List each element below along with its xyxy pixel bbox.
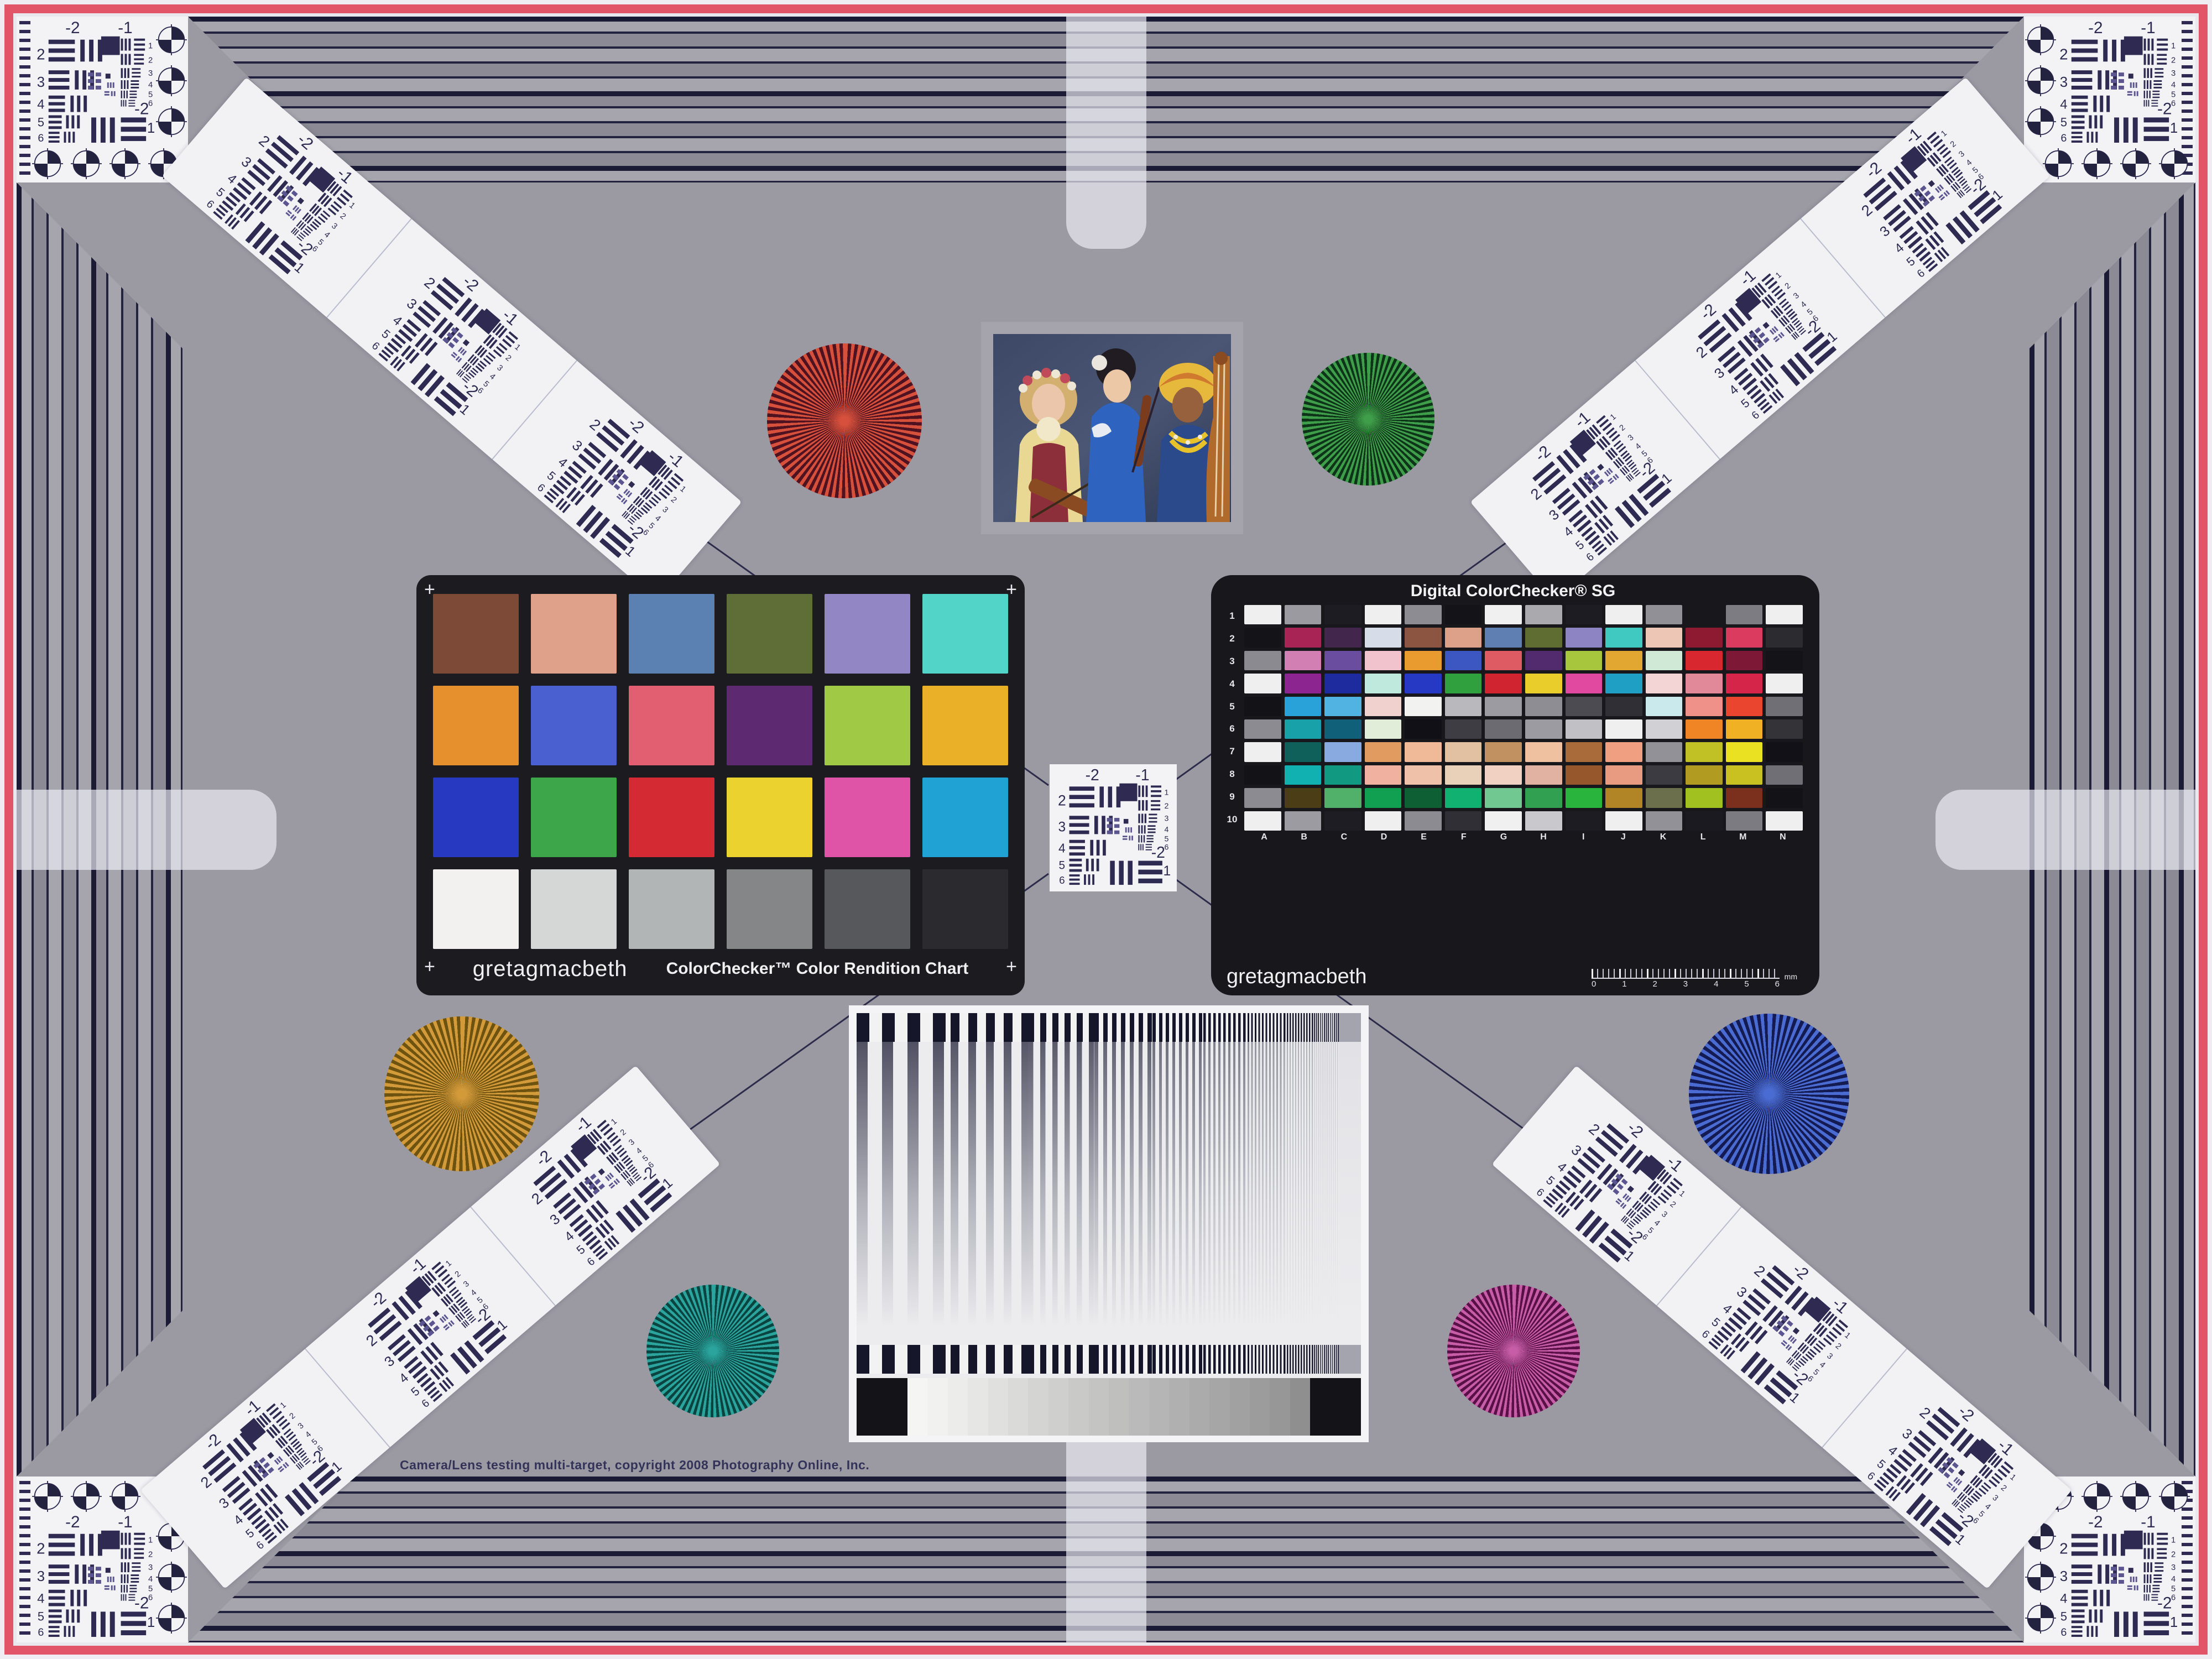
color-patch: [922, 869, 1008, 949]
color-patch: [1566, 742, 1603, 761]
sg-patch-grid: [1244, 605, 1803, 831]
color-patch: [1485, 674, 1522, 693]
color-patch: [1646, 697, 1683, 716]
color-patch: [1324, 788, 1361, 807]
color-patch: [1686, 719, 1723, 739]
color-patch: [1324, 697, 1361, 716]
color-patch: [1605, 719, 1642, 739]
sg-brand: gretagmacbeth: [1227, 965, 1367, 989]
color-patch: [1405, 811, 1442, 831]
sg-column-label: G: [1484, 832, 1524, 842]
color-patch: [1365, 719, 1402, 739]
color-patch: [1726, 674, 1763, 693]
color-patch: [1445, 788, 1482, 807]
quadrant-mark-icon: [71, 1481, 102, 1512]
sg-column-label: A: [1244, 832, 1284, 842]
ruler-number: 6: [1775, 979, 1780, 989]
color-patch: [1405, 719, 1442, 739]
gray-step: [1230, 1378, 1250, 1436]
color-patch: [1525, 605, 1562, 624]
color-patch: [1686, 628, 1723, 647]
color-patch: [1605, 605, 1642, 624]
color-patch: [1566, 628, 1603, 647]
color-patch: [1244, 788, 1281, 807]
color-patch: [433, 594, 519, 674]
color-patch: [1324, 605, 1361, 624]
color-patch: [1365, 605, 1402, 624]
color-patch: [1646, 742, 1683, 761]
color-patch: [1726, 742, 1763, 761]
color-patch: [1525, 765, 1562, 785]
color-patch: [629, 778, 714, 857]
magenta-siemens-star: [1447, 1285, 1580, 1417]
gray-step: [1048, 1378, 1068, 1436]
musicians-photo-illustration: [993, 334, 1231, 522]
color-patch: [1566, 788, 1603, 807]
ruler-number: 5: [1744, 979, 1749, 989]
portrait-photo: [981, 322, 1243, 534]
color-patch: [1285, 651, 1322, 670]
quadrant-mark-icon: [2120, 148, 2151, 179]
color-patch: [1605, 788, 1642, 807]
color-patch: [629, 869, 714, 949]
corner-target-top-left: [17, 17, 188, 182]
color-patch: [1485, 742, 1522, 761]
color-patch: [433, 778, 519, 857]
quadrant-mark-icon: [32, 148, 63, 179]
sg-column-label: E: [1404, 832, 1444, 842]
sg-row-label: 5: [1229, 701, 1234, 712]
sg-row-labels: 12345678910: [1223, 605, 1241, 831]
sg-column-label: D: [1364, 832, 1404, 842]
color-patch: [825, 778, 910, 857]
color-patch: [1766, 605, 1803, 624]
grayscale-step-wedge: [857, 1378, 1361, 1436]
quadrant-mark-icon: [2081, 1481, 2112, 1512]
color-patch: [1726, 628, 1763, 647]
color-patch: [1686, 788, 1723, 807]
color-patch: [1405, 765, 1442, 785]
ruler-unit: mm: [1785, 972, 1797, 981]
color-patch: [922, 778, 1008, 857]
color-patch: [1605, 697, 1642, 716]
sg-column-labels: ABCDEFGHIJKLMN: [1244, 831, 1803, 844]
quadrant-mark-icon: [156, 65, 187, 96]
sg-column-label: K: [1643, 832, 1683, 842]
ruler-number: 3: [1683, 979, 1688, 989]
color-patch: [1244, 674, 1281, 693]
color-patch: [1405, 788, 1442, 807]
color-patch: [1285, 765, 1322, 785]
quadrant-mark-icon: [2025, 106, 2056, 137]
registration-plus-icon: +: [1006, 584, 1017, 595]
color-patch: [1525, 719, 1562, 739]
gray-step: [1028, 1378, 1048, 1436]
ruler-numbers: 0123456: [1592, 979, 1780, 989]
color-patch: [825, 869, 910, 949]
color-patch: [1405, 605, 1442, 624]
color-patch: [922, 594, 1008, 674]
gray-step: [1209, 1378, 1229, 1436]
test-chart-page: -2 -1 2 3 4 5 6: [0, 0, 2212, 1659]
black-end-patch: [857, 1378, 907, 1436]
sg-ruler: 0123456 mm: [1592, 969, 1799, 989]
color-patch: [1646, 765, 1683, 785]
color-patch: [1244, 765, 1281, 785]
ruler-number: 1: [1622, 979, 1626, 989]
gray-step: [1129, 1378, 1149, 1436]
right-edge-marker-tab: [1936, 790, 2195, 870]
color-patch: [1405, 651, 1442, 670]
quadrant-mark-icon: [2025, 1562, 2056, 1593]
color-patch: [1485, 788, 1522, 807]
black-end-patch: [1310, 1378, 1361, 1436]
color-patch: [1646, 719, 1683, 739]
color-patch: [1525, 628, 1562, 647]
color-patch: [1324, 651, 1361, 670]
color-patch: [1525, 788, 1562, 807]
quadrant-mark-icon: [156, 1562, 187, 1593]
color-patch: [1405, 628, 1442, 647]
gray-step: [1109, 1378, 1129, 1436]
color-patch: [1285, 605, 1322, 624]
gold-siemens-star: [384, 1016, 539, 1171]
color-patch: [1525, 811, 1562, 831]
sg-row-label: 8: [1229, 769, 1234, 780]
sg-row-label: 4: [1229, 679, 1234, 690]
colorchecker-title: ColorChecker™ Color Rendition Chart: [666, 959, 969, 978]
color-patch: [1405, 697, 1442, 716]
color-patch: [1726, 765, 1763, 785]
color-patch: [1646, 788, 1683, 807]
color-patch: [1726, 719, 1763, 739]
sg-column-label: J: [1603, 832, 1643, 842]
sg-row-label: 9: [1229, 791, 1234, 802]
color-patch: [1566, 697, 1603, 716]
color-patch: [1445, 811, 1482, 831]
color-patch: [825, 594, 910, 674]
color-patch: [1365, 651, 1402, 670]
color-patch: [1324, 742, 1361, 761]
quadrant-mark-icon: [156, 106, 187, 137]
color-patch: [1285, 697, 1322, 716]
corner-target-top-right: [2024, 17, 2195, 182]
color-patch: [1445, 765, 1482, 785]
color-patch: [1686, 674, 1723, 693]
color-patch: [1686, 811, 1723, 831]
color-patch: [1445, 674, 1482, 693]
color-patch: [1605, 651, 1642, 670]
quadrant-mark-icon: [2025, 24, 2056, 55]
color-patch: [1405, 674, 1442, 693]
quadrant-mark-icon: [109, 1481, 140, 1512]
color-patch: [1365, 788, 1402, 807]
quadrant-mark-icon: [2081, 148, 2112, 179]
gray-step: [907, 1378, 927, 1436]
color-patch: [1605, 811, 1642, 831]
tick-scale: [19, 1481, 30, 1638]
color-patch: [1605, 765, 1642, 785]
gray-step: [1270, 1378, 1290, 1436]
color-patch: [1646, 651, 1683, 670]
quadrant-mark-icon: [109, 148, 140, 179]
gray-step: [1149, 1378, 1169, 1436]
color-patch: [1324, 719, 1361, 739]
color-patch: [1365, 697, 1402, 716]
color-patch: [727, 686, 812, 765]
sine-sweep-area: [857, 1042, 1361, 1345]
bar-frequency-row-bottom: [857, 1345, 1361, 1374]
color-patch: [531, 686, 617, 765]
copyright-text: Camera/Lens testing multi-target, copyri…: [400, 1458, 869, 1473]
color-patch: [1285, 719, 1322, 739]
color-patch: [1726, 651, 1763, 670]
quadrant-mark-icon: [32, 1481, 63, 1512]
color-patch: [1726, 811, 1763, 831]
color-patch: [1766, 742, 1803, 761]
usaf-resolution-target: [1056, 768, 1171, 888]
sg-row-label: 1: [1229, 611, 1234, 622]
quadrant-mark-icon: [71, 148, 102, 179]
color-patch: [1766, 788, 1803, 807]
quadrant-mark-icon: [2159, 148, 2190, 179]
ruler-number: 4: [1714, 979, 1718, 989]
sg-row-label: 10: [1227, 814, 1238, 825]
color-patch: [1445, 628, 1482, 647]
green-siemens-star: [1302, 353, 1434, 486]
color-patch: [433, 686, 519, 765]
color-patch: [1244, 811, 1281, 831]
color-patch: [1244, 605, 1281, 624]
color-patch: [1726, 788, 1763, 807]
gray-step: [927, 1378, 947, 1436]
color-patch: [1285, 742, 1322, 761]
bar-frequency-row-top: [857, 1013, 1361, 1042]
color-patch: [1566, 605, 1603, 624]
bottom-edge-marker-tab: [1066, 1410, 1146, 1642]
gray-step: [1089, 1378, 1109, 1436]
color-patch: [1646, 674, 1683, 693]
gray-step: [1008, 1378, 1028, 1436]
color-patch: [1686, 742, 1723, 761]
color-patch: [1244, 697, 1281, 716]
gray-steps: [907, 1378, 1310, 1436]
usaf-resolution-target: [2057, 1514, 2178, 1640]
color-patch: [1525, 674, 1562, 693]
color-patch: [1365, 628, 1402, 647]
color-patch: [922, 686, 1008, 765]
teal-siemens-star: [646, 1285, 779, 1417]
quadrant-mark-icon: [156, 24, 187, 55]
color-patch: [1324, 674, 1361, 693]
gray-step: [1290, 1378, 1310, 1436]
color-patch: [1525, 697, 1562, 716]
sg-column-label: B: [1284, 832, 1324, 842]
color-patch: [1766, 719, 1803, 739]
color-patch: [433, 869, 519, 949]
color-patch: [1365, 674, 1402, 693]
sg-column-label: N: [1763, 832, 1803, 842]
color-patch: [1646, 605, 1683, 624]
color-patch: [727, 869, 812, 949]
color-patch: [1726, 697, 1763, 716]
registration-plus-icon: +: [1006, 961, 1017, 972]
sg-row-label: 7: [1229, 746, 1234, 757]
ruler-ticks: [1592, 969, 1780, 979]
color-patch: [629, 594, 714, 674]
color-patch: [1766, 674, 1803, 693]
top-edge-marker-tab: [1066, 17, 1146, 249]
color-patch: [1566, 719, 1603, 739]
ruler-number: 0: [1592, 979, 1596, 989]
color-patch: [1485, 697, 1522, 716]
registration-plus-icon: +: [424, 961, 435, 972]
color-patch: [1445, 697, 1482, 716]
gray-step: [968, 1378, 988, 1436]
color-patch: [1324, 765, 1361, 785]
left-edge-marker-tab: [17, 790, 276, 870]
sg-column-label: I: [1563, 832, 1603, 842]
color-patch: [1445, 651, 1482, 670]
sg-column-label: M: [1723, 832, 1763, 842]
color-patch: [1646, 811, 1683, 831]
color-patch: [1525, 742, 1562, 761]
sg-row-label: 6: [1229, 723, 1234, 734]
color-patch: [629, 686, 714, 765]
color-patch: [1485, 651, 1522, 670]
frequency-sweep-chart: [849, 1005, 1369, 1442]
usaf-resolution-target: [34, 20, 155, 146]
color-patch: [531, 778, 617, 857]
color-patch: [1324, 628, 1361, 647]
color-patch: [1485, 719, 1522, 739]
color-patch: [1766, 765, 1803, 785]
sg-column-label: F: [1444, 832, 1484, 842]
color-patch: [1285, 628, 1322, 647]
quadrant-mark-icon: [2159, 1481, 2190, 1512]
color-patch: [1566, 765, 1603, 785]
color-patch: [1365, 811, 1402, 831]
color-patch: [1686, 605, 1723, 624]
color-patch: [1566, 674, 1603, 693]
color-patch: [1485, 628, 1522, 647]
gray-step: [1169, 1378, 1189, 1436]
sg-column-label: C: [1324, 832, 1364, 842]
color-patch: [1646, 628, 1683, 647]
center-usaf-target: [1050, 764, 1177, 891]
color-patch: [1605, 628, 1642, 647]
blue-siemens-star: [1689, 1014, 1849, 1174]
color-patch: [825, 686, 910, 765]
color-patch: [1766, 628, 1803, 647]
color-patch: [1686, 651, 1723, 670]
color-patch: [1285, 811, 1322, 831]
color-patch: [1244, 719, 1281, 739]
color-patch: [1365, 765, 1402, 785]
color-patch: [1605, 742, 1642, 761]
quadrant-mark-icon: [2120, 1481, 2151, 1512]
color-patch: [531, 869, 617, 949]
color-patch: [1445, 719, 1482, 739]
gray-step: [948, 1378, 968, 1436]
color-patch: [1766, 697, 1803, 716]
gray-step: [1190, 1378, 1209, 1436]
color-patch: [1324, 811, 1361, 831]
colorchecker-patch-grid: [433, 594, 1008, 949]
color-patch: [727, 778, 812, 857]
color-patch: [1285, 788, 1322, 807]
colorchecker-classic-chart: gretagmacbeth ColorChecker™ Color Rendit…: [416, 575, 1025, 995]
sg-title: Digital ColorChecker® SG: [1223, 582, 1803, 605]
color-patch: [1244, 651, 1281, 670]
color-patch: [1244, 742, 1281, 761]
color-patch: [1485, 765, 1522, 785]
registration-plus-icon: +: [424, 584, 435, 595]
colorchecker-brand: gretagmacbeth: [473, 957, 628, 982]
color-patch: [1485, 811, 1522, 831]
color-patch: [1405, 742, 1442, 761]
color-patch: [1605, 674, 1642, 693]
color-patch: [1686, 765, 1723, 785]
sg-column-label: H: [1524, 832, 1563, 842]
gray-step: [1250, 1378, 1270, 1436]
color-patch: [727, 594, 812, 674]
color-patch: [1365, 742, 1402, 761]
gray-step: [988, 1378, 1008, 1436]
ruler-number: 2: [1653, 979, 1657, 989]
quadrant-mark-icon: [2025, 1603, 2056, 1634]
color-patch: [1244, 628, 1281, 647]
red-siemens-star: [767, 343, 922, 498]
color-patch: [1566, 811, 1603, 831]
usaf-resolution-target: [2057, 20, 2178, 146]
gray-step: [1068, 1378, 1088, 1436]
usaf-resolution-target: [34, 1514, 155, 1640]
color-patch: [1525, 651, 1562, 670]
color-patch: [531, 594, 617, 674]
color-patch: [1285, 674, 1322, 693]
color-patch: [1445, 605, 1482, 624]
color-patch: [1445, 742, 1482, 761]
tick-scale: [19, 21, 30, 178]
color-patch: [1686, 697, 1723, 716]
color-patch: [1766, 811, 1803, 831]
sg-row-label: 3: [1229, 656, 1234, 667]
color-patch: [1566, 651, 1603, 670]
quadrant-mark-icon: [156, 1603, 187, 1634]
sg-row-label: 2: [1229, 633, 1234, 644]
sg-column-label: L: [1683, 832, 1723, 842]
colorchecker-sg-chart: Digital ColorChecker® SG 12345678910 ABC…: [1211, 575, 1819, 995]
color-patch: [1485, 605, 1522, 624]
color-patch: [1766, 651, 1803, 670]
quadrant-mark-icon: [2025, 65, 2056, 96]
color-patch: [1726, 605, 1763, 624]
